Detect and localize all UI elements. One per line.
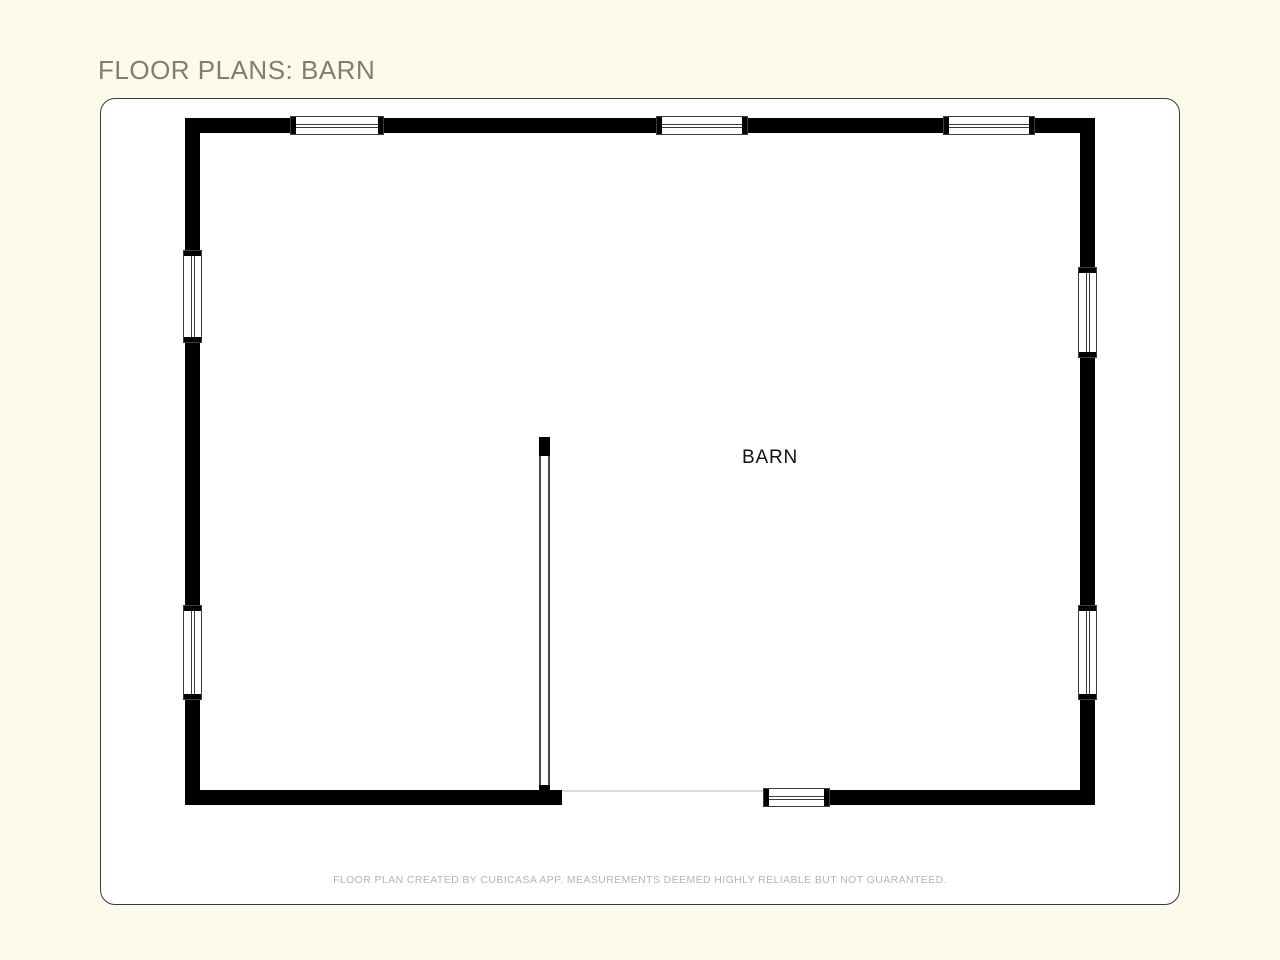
window-symbol [656,116,748,135]
window-end-cap [824,789,829,806]
window-end-cap [1029,117,1034,134]
window-pane-lines [769,796,824,800]
window-pane-lines [296,124,378,128]
window-end-cap [378,117,383,134]
floor-plan [0,0,1280,960]
window-pane-lines [191,256,195,337]
window-pane-lines [662,124,742,128]
window-end-cap [1079,694,1096,699]
window-symbol [183,250,202,343]
window-pane-lines [949,124,1029,128]
disclaimer-text: FLOOR PLAN CREATED BY CUBICASA APP. MEAS… [100,874,1180,886]
window-end-cap [742,117,747,134]
wall-right [1080,118,1095,805]
window-pane-lines [1086,273,1090,352]
window-pane-lines [1086,611,1090,694]
window-symbol [763,788,830,807]
window-pane-lines [191,611,195,694]
interior-wall-cap [539,437,550,456]
window-symbol [183,605,202,700]
window-symbol [943,116,1035,135]
window-symbol [1078,267,1097,358]
interior-wall [539,437,550,790]
door-opening [562,790,763,792]
page: FLOOR PLANS: BARN BARN FLOOR PLAN CREATE… [0,0,1280,960]
room-label: BARN [690,447,850,469]
window-end-cap [1079,352,1096,357]
wall-bottom-left [185,790,562,805]
window-symbol [290,116,384,135]
wall-left [185,118,200,805]
window-symbol [1078,605,1097,700]
wall-bottom-right [830,790,1095,805]
window-end-cap [184,337,201,342]
window-end-cap [184,694,201,699]
interior-wall-cap [539,785,550,790]
